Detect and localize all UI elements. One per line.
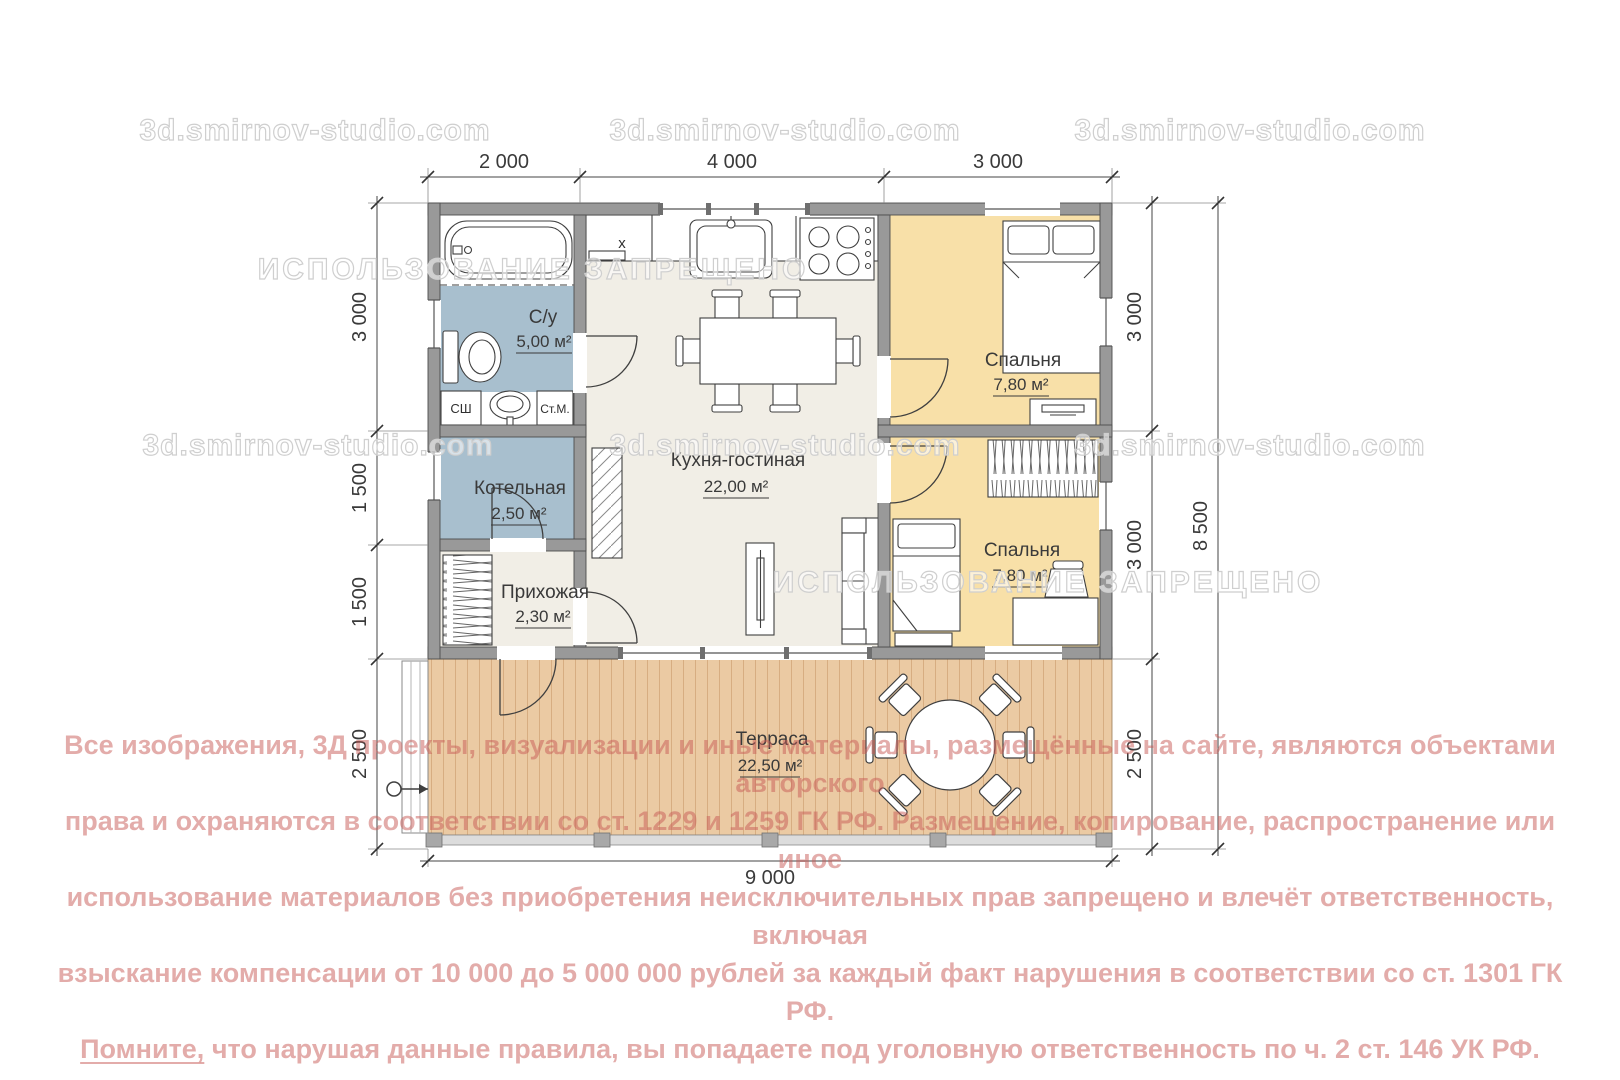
watermark-site-5: 3d.smirnov-studio.com <box>609 429 960 463</box>
watermark-ban-2: ИСПОЛЬЗОВАНИЕ ЗАПРЕЩЕНО <box>773 566 1324 600</box>
watermark-ban-1: ИСПОЛЬЗОВАНИЕ ЗАПРЕЩЕНО <box>258 253 809 287</box>
dim-right-2: 3 000 <box>1124 520 1146 570</box>
copyright-line-5-rest: что нарушая данные правила, вы попадаете… <box>204 1034 1540 1064</box>
toilet <box>443 331 501 383</box>
boiler-area: 2,50 м² <box>491 504 546 523</box>
bedroom-2-name: Спальня <box>984 540 1060 561</box>
fridge-mark-label: x <box>618 235 626 252</box>
bedroom-1-name: Спальня <box>985 350 1061 371</box>
copyright-line-5-emphasis: Помните, <box>80 1034 204 1064</box>
dim-left-1: 3 000 <box>349 292 371 342</box>
watermark-site-1: 3d.smirnov-studio.com <box>139 114 490 148</box>
drying-cabinet-label: СШ <box>450 401 471 416</box>
copyright-notice: Все изображения, 3Д проекты, визуализаци… <box>40 726 1580 1068</box>
copyright-line-3: использование материалов без приобретени… <box>40 878 1580 954</box>
tv-stand <box>746 543 774 635</box>
copyright-line-4: взыскание компенсации от 10 000 до 5 000… <box>40 954 1580 1030</box>
storage-shelf <box>592 448 622 558</box>
dining-table <box>700 318 836 384</box>
dim-right-1: 3 000 <box>1124 292 1146 342</box>
kitchen-living-area: 22,00 м² <box>704 477 769 496</box>
dim-right-total: 8 500 <box>1190 501 1212 551</box>
washing-machine-label: Ст.М. <box>540 402 570 416</box>
dim-top-3: 3 000 <box>973 151 1023 173</box>
dim-left-2: 1 500 <box>349 463 371 513</box>
dim-top-2: 4 000 <box>707 151 757 173</box>
copyright-line-1: Все изображения, 3Д проекты, визуализаци… <box>40 726 1580 802</box>
hallway-wardrobe <box>443 555 492 645</box>
bedroom-1-area: 7,80 м² <box>993 375 1048 394</box>
hallway-area: 2,30 м² <box>515 607 570 626</box>
boiler-name: Котельная <box>474 478 566 499</box>
watermark-site-2: 3d.smirnov-studio.com <box>609 114 960 148</box>
bathroom-area: 5,00 м² <box>516 332 571 351</box>
bathroom-name: С/у <box>529 307 558 328</box>
dim-left-3: 1 500 <box>349 577 371 627</box>
copyright-line-5: Помните, что нарушая данные правила, вы … <box>40 1030 1580 1068</box>
watermark-site-3: 3d.smirnov-studio.com <box>1074 114 1425 148</box>
copyright-line-2: права и охраняются в соответствии со ст.… <box>40 802 1580 878</box>
dim-top-1: 2 000 <box>479 151 529 173</box>
watermark-site-6: 3d.smirnov-studio.com <box>1074 429 1425 463</box>
stove <box>800 218 874 280</box>
watermark-site-4: 3d.smirnov-studio.com <box>142 429 493 463</box>
hallway-name: Прихожая <box>501 582 589 603</box>
floor-plan-page: 2 000 4 000 3 000 3 000 1 500 1 500 2 50… <box>0 0 1620 1080</box>
bedroom-1-dresser <box>1030 399 1096 425</box>
